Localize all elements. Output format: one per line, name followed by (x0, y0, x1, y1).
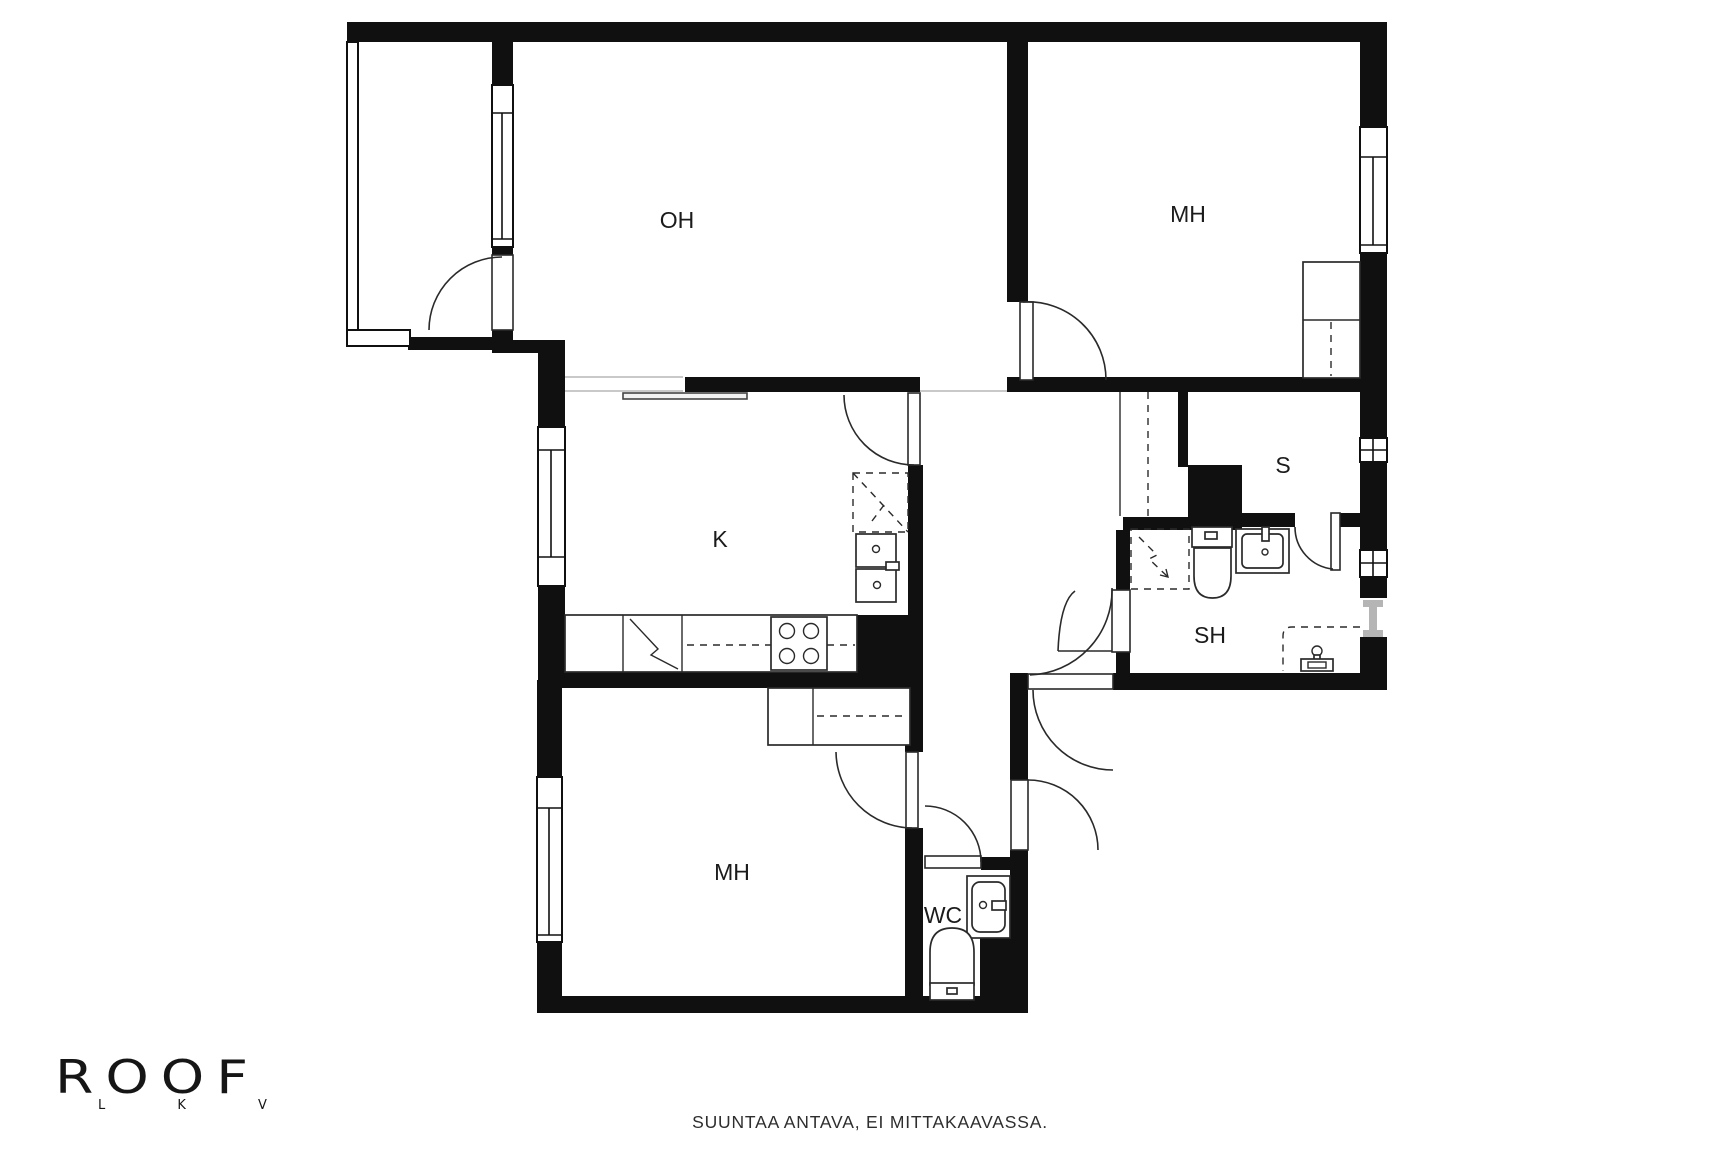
floor-drain (1301, 646, 1333, 671)
closet-hallway (1120, 392, 1148, 516)
door-sauna (1295, 513, 1340, 570)
disclaimer-text: SUUNTAA ANTAVA, EI MITTAKAAVASSA. (692, 1112, 1048, 1132)
logo-subtext: L K V (98, 1098, 301, 1113)
sink-wc (967, 876, 1010, 938)
door-wc (925, 806, 981, 868)
closet-mh-top (1303, 262, 1360, 378)
wardrobe-mh-bottom (768, 688, 910, 745)
window-kitchen-west (538, 427, 565, 586)
shower-enclosure (1131, 529, 1189, 589)
room-label-mh-bottom: MH (714, 859, 750, 885)
balcony-railing (347, 42, 410, 346)
roof-lkv-logo: ROOF L K V (55, 1050, 301, 1113)
door-balcony (429, 255, 513, 330)
floorplan-page: OH MH K S SH MH WC ROOF L K V SUUNTAA AN… (0, 0, 1730, 1150)
room-label-wc: WC (924, 902, 962, 928)
toilet-shower-room (1192, 527, 1232, 598)
door-entry (1028, 674, 1113, 770)
floorplan-canvas: OH MH K S SH MH WC ROOF L K V SUUNTAA AN… (0, 0, 1730, 1150)
room-label-shower: SH (1194, 622, 1226, 648)
room-label-mh-top: MH (1170, 201, 1206, 227)
kitchen-sink (856, 534, 899, 602)
room-label-kitchen: K (712, 526, 728, 552)
window-sauna-east (1360, 438, 1387, 462)
door-hall-side (1011, 780, 1098, 850)
sink-shower-room (1236, 527, 1289, 573)
room-label-oh: OH (660, 207, 695, 233)
watermark-i-beam (1363, 600, 1383, 637)
door-mh-top (1020, 302, 1106, 380)
window-balcony-wall (492, 85, 513, 247)
logo-text: ROOF (55, 1050, 260, 1104)
window-shower-east (1360, 550, 1387, 577)
room-label-sauna: S (1275, 452, 1290, 478)
window-mh-bottom-west (537, 777, 562, 942)
door-kitchen (844, 393, 920, 465)
door-shower (1030, 588, 1130, 675)
toilet-wc (930, 928, 974, 1000)
stove (771, 617, 827, 670)
kitchen-tall-cabinets (853, 473, 908, 532)
door-mh-bottom (836, 752, 918, 828)
window-mh-top-east (1360, 127, 1387, 253)
kitchen-counter-bar (623, 393, 747, 399)
